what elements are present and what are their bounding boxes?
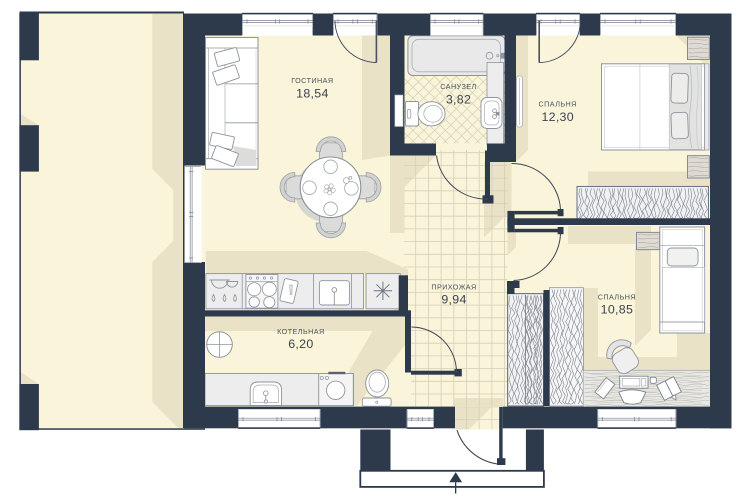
svg-text:САНУЗЕЛ: САНУЗЕЛ xyxy=(440,82,476,91)
svg-text:СПАЛЬНЯ: СПАЛЬНЯ xyxy=(598,292,636,301)
svg-text:6,20: 6,20 xyxy=(288,337,313,351)
svg-text:ГОСТИНАЯ: ГОСТИНАЯ xyxy=(291,76,333,85)
svg-text:9,94: 9,94 xyxy=(441,293,466,307)
svg-text:ПРИХОЖАЯ: ПРИХОЖАЯ xyxy=(431,282,476,291)
svg-text:10,85: 10,85 xyxy=(601,303,634,317)
svg-text:СПАЛЬНЯ: СПАЛЬНЯ xyxy=(539,100,577,109)
svg-text:КОТЕЛЬНАЯ: КОТЕЛЬНАЯ xyxy=(277,327,325,336)
svg-text:12,30: 12,30 xyxy=(541,110,574,124)
svg-text:18,54: 18,54 xyxy=(296,87,329,101)
svg-text:3,82: 3,82 xyxy=(446,92,471,106)
